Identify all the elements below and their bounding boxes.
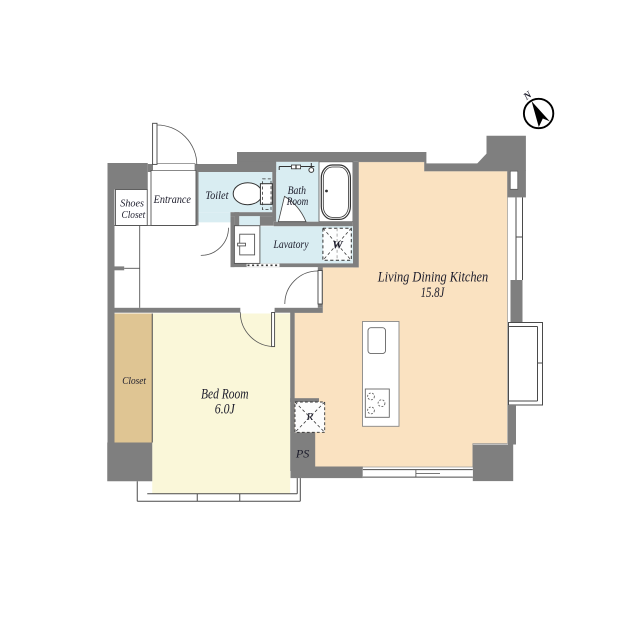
svg-text:6.0J: 6.0J [215,402,235,418]
svg-text:Entrance: Entrance [153,194,191,206]
svg-text:PS: PS [295,449,310,461]
svg-text:15.8J: 15.8J [421,285,445,301]
svg-text:R: R [306,411,314,423]
svg-text:Closet: Closet [122,376,147,387]
svg-text:Lavatory: Lavatory [273,239,310,251]
svg-text:Shoes: Shoes [120,198,144,209]
svg-text:W: W [332,238,344,252]
svg-text:Room: Room [286,196,308,208]
svg-text:Toilet: Toilet [205,190,229,202]
svg-text:Closet: Closet [122,210,146,221]
svg-text:Living Dining Kitchen: Living Dining Kitchen [377,270,488,286]
svg-text:Bed Room: Bed Room [201,387,249,403]
